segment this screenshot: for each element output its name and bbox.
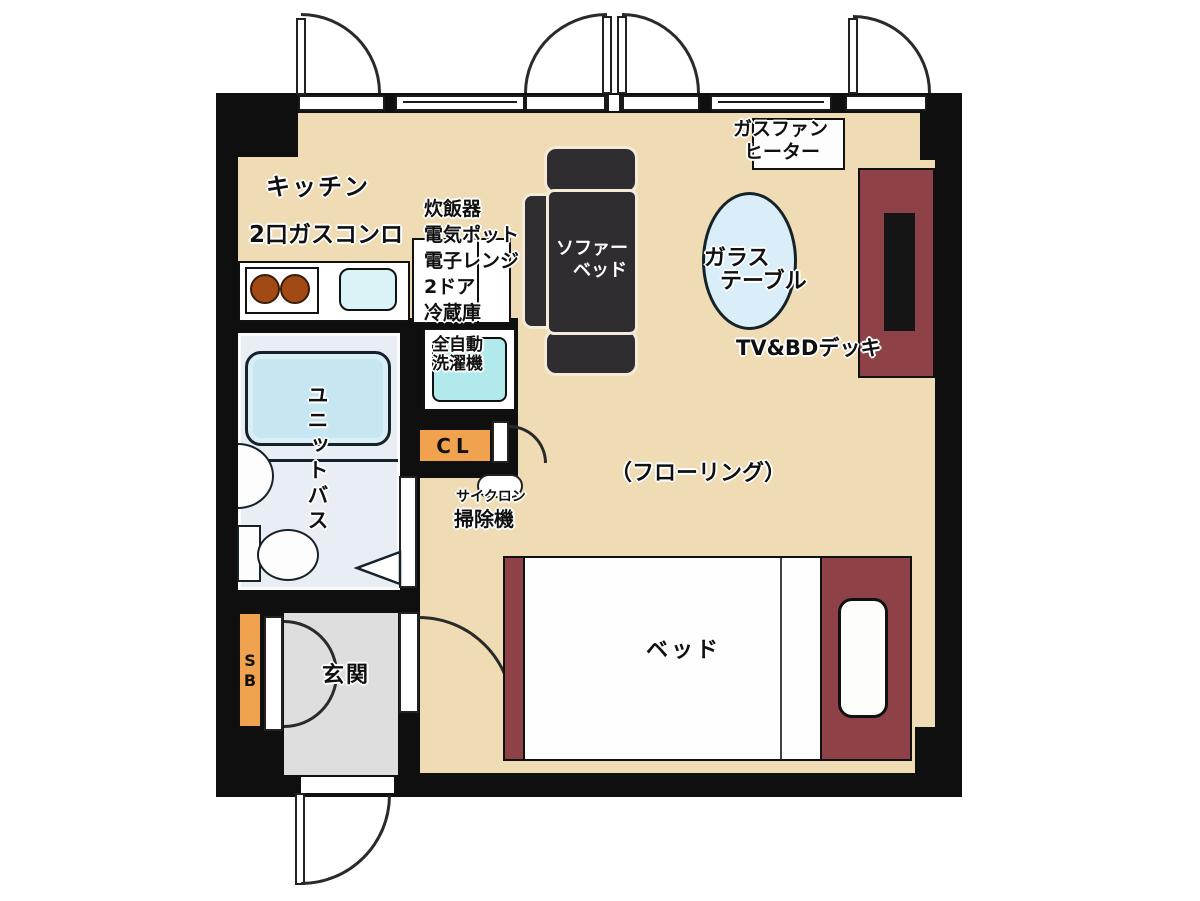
window-sliding-1 [395,95,525,111]
vacuum-label-line2: 掃除機 [454,503,514,532]
floor-plan: ユニットバス 全自動 洗濯機 CL S B 玄関 ソファー ベッド [0,0,1200,901]
kitchen-label: キッチン [266,167,370,202]
stove-burner-icon [280,274,310,304]
sofa-bed-label-line2: ベッド [546,260,638,282]
flooring-label: （フローリング） [610,455,786,487]
appliance-label-2door: 2ドア [424,272,475,299]
wall-corner-bottom-right [915,727,962,797]
appliance-label-electric-pot: 電気ポット [424,220,519,247]
window-sliding-2 [710,95,832,111]
closet-label: CL [436,434,473,458]
wall-right [935,111,962,797]
bed-pillow [838,598,888,718]
entrance-label: 玄関 [322,657,370,689]
window-casement-left [298,95,385,111]
tv-screen [884,213,915,331]
window-casement-right [845,95,927,111]
kitchen-equipment-label: 2口ガスコンロ [249,215,403,249]
entry-threshold [299,775,396,795]
sofa-bed-armrest-bottom [544,329,638,376]
door-swing-arc-icon [301,795,391,885]
unit-bath-label: ユニットバス [302,384,332,534]
appliance-label-microwave: 電子レンジ [424,246,519,273]
appliance-label-refrigerator: 冷蔵庫 [424,298,481,325]
bed-footboard [503,556,525,761]
tv-bd-deck-label: TV&BDデッキ [736,332,881,362]
sofa-bed-label: ソファー ベッド [546,238,638,282]
sofa-bed-label-line1: ソファー [546,238,638,260]
shoe-box-door-leaf [264,616,283,731]
door-swing-arc-icon [301,13,381,93]
french-door-left-opening [525,95,606,111]
toilet-bowl [257,529,319,581]
washer-label-line2: 洗濯機 [432,349,483,374]
kitchen-sink [339,268,397,311]
bed-headboard [820,556,912,761]
closet-box: CL [418,428,492,463]
shoe-box-label-line2: B [244,671,256,690]
room-door-leaf [399,612,419,713]
gas-fan-heater-label-line2: ヒーター [744,137,820,164]
door-swing-arc-icon [524,13,607,93]
appliance-label-rice-cooker: 炊飯器 [424,194,481,221]
closet-door-leaf [492,421,509,463]
bed-label: ベッド [646,632,721,664]
door-swing-arc-icon [622,13,700,93]
french-door-right-opening [622,95,700,111]
shoe-box-label-line1: S [244,651,256,670]
door-leaf [602,16,612,94]
glass-table-label-line2: テーブル [720,263,807,295]
bed-sheet-line [780,558,782,759]
shoe-box: S B [238,612,262,728]
sofa-bed-armrest-top [544,146,638,194]
stove-burner-icon [250,274,280,304]
french-door-mullion [606,95,622,111]
door-swing-arc-icon [853,15,931,93]
bath-door-swing-icon [354,549,402,587]
